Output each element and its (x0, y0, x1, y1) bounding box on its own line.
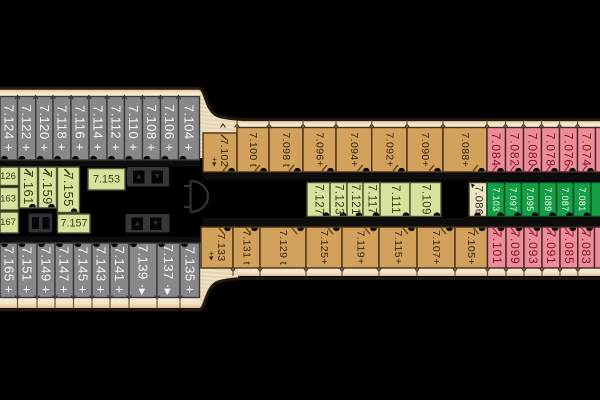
svg-text:7.086: 7.086 (473, 186, 485, 216)
svg-text:7.097: 7.097 (508, 187, 518, 211)
svg-text:7.131 t: 7.131 t (241, 230, 253, 265)
svg-text:7.149 +: 7.149 + (39, 247, 54, 294)
svg-text:7.139 ·▸: 7.139 ·▸ (136, 245, 151, 296)
svg-text:7.121: 7.121 (349, 184, 361, 215)
svg-text:7.112 +: 7.112 + (108, 105, 123, 151)
svg-text:7.127: 7.127 (313, 184, 325, 215)
svg-text:7.125+: 7.125+ (318, 230, 330, 265)
svg-text:7.085: 7.085 (562, 230, 576, 264)
svg-text:7.151 +: 7.151 + (20, 247, 35, 294)
svg-text:7.153: 7.153 (93, 174, 120, 186)
svg-text:7.119+: 7.119+ (355, 230, 367, 264)
svg-text:7.145 +: 7.145 + (75, 247, 90, 294)
svg-text:7.076: 7.076 (562, 133, 576, 167)
svg-text:7.098 t: 7.098 t (280, 132, 292, 167)
svg-text:7.165 +: 7.165 + (1, 247, 16, 294)
svg-text:7.105+: 7.105+ (465, 230, 477, 265)
svg-text:7.147 +: 7.147 + (57, 247, 72, 294)
svg-text:7.116 +: 7.116 + (73, 105, 88, 151)
svg-text:7.093: 7.093 (526, 230, 540, 264)
svg-text:7.110 +: 7.110 + (126, 105, 141, 151)
svg-text:7.094+: 7.094+ (348, 132, 360, 167)
svg-text:7.091: 7.091 (544, 230, 558, 264)
svg-text:7.100 t: 7.100 t (247, 132, 259, 167)
svg-text:7.115+: 7.115+ (392, 230, 404, 264)
svg-text:7.109: 7.109 (420, 184, 432, 215)
svg-text:7.082: 7.082 (508, 133, 522, 167)
svg-text:7.089: 7.089 (543, 187, 553, 211)
svg-text:126: 126 (0, 171, 16, 182)
svg-text:7.135 +: 7.135 + (182, 247, 197, 294)
svg-text:7.141 +: 7.141 + (112, 247, 127, 294)
svg-text:167: 167 (0, 217, 16, 228)
svg-text:7.088+: 7.088+ (459, 132, 471, 167)
svg-text:7.123: 7.123 (333, 184, 345, 215)
svg-text:7.106 +: 7.106 + (162, 105, 177, 152)
svg-text:7.078: 7.078 (544, 133, 558, 167)
svg-text:7.143 +: 7.143 + (94, 247, 109, 294)
svg-text:7.104 +: 7.104 + (182, 105, 197, 152)
svg-text:+▸: +▸ (210, 157, 220, 167)
svg-text:7.083: 7.083 (579, 230, 593, 264)
svg-text:7.101: 7.101 (490, 230, 504, 264)
svg-text:7.124 +: 7.124 + (1, 105, 16, 152)
svg-text:7.095: 7.095 (525, 187, 535, 211)
svg-text:7.120 +: 7.120 + (37, 105, 52, 152)
svg-text:7.117: 7.117 (366, 185, 378, 215)
svg-text:7.084: 7.084 (489, 133, 503, 167)
svg-text:7.107+: 7.107+ (430, 230, 442, 265)
svg-text:7.157: 7.157 (60, 218, 87, 230)
svg-text:7.096+: 7.096+ (314, 132, 326, 167)
svg-text:7.087: 7.087 (560, 187, 570, 211)
svg-text:+▸: +▸ (207, 251, 217, 261)
svg-text:7.108 +: 7.108 + (144, 105, 159, 152)
svg-text:7.159: 7.159 (40, 170, 55, 205)
svg-text:7.111: 7.111 (389, 185, 401, 214)
svg-text:7.092+: 7.092+ (383, 132, 395, 167)
svg-text:7.114 +: 7.114 + (91, 105, 106, 151)
svg-text:7.129 t: 7.129 t (277, 230, 289, 265)
svg-text:7.137 ·▸: 7.137 ·▸ (161, 245, 176, 296)
svg-text:7.090+: 7.090+ (419, 132, 431, 167)
svg-text:7.103: 7.103 (491, 187, 501, 211)
svg-text:7.074: 7.074 (580, 133, 594, 167)
svg-text:7.080: 7.080 (526, 133, 540, 167)
svg-text:7.122 +: 7.122 + (19, 105, 34, 152)
svg-text:7.099: 7.099 (508, 230, 522, 264)
svg-text:7.155: 7.155 (61, 172, 76, 207)
svg-text:7.118 +: 7.118 + (55, 105, 70, 151)
svg-text:7.081: 7.081 (577, 187, 587, 211)
svg-text:7.161: 7.161 (21, 170, 36, 205)
svg-text:163: 163 (0, 194, 16, 205)
